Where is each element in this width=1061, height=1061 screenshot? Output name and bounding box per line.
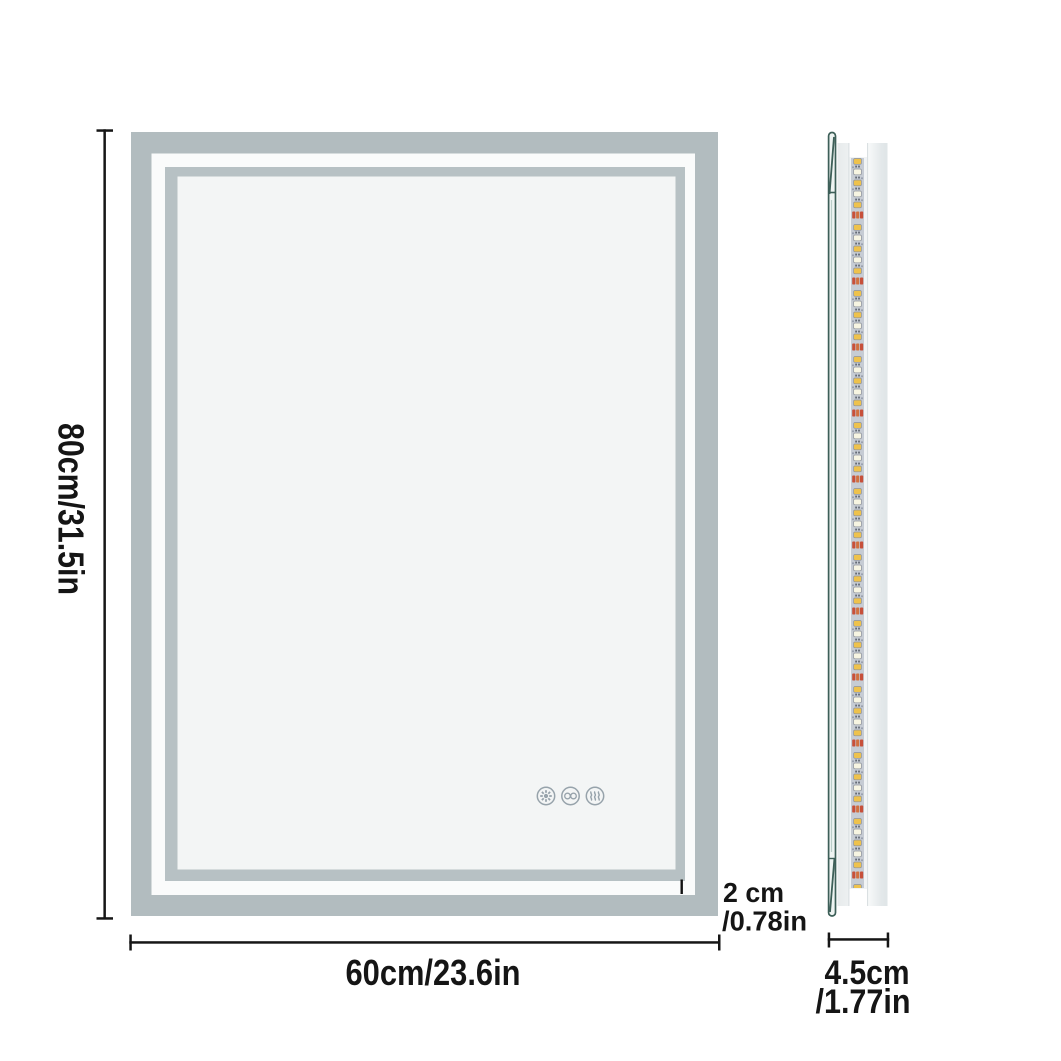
svg-text:/0.78in: /0.78in <box>722 906 807 937</box>
svg-text:80cm/31.5in: 80cm/31.5in <box>50 423 91 595</box>
svg-text:2 cm: 2 cm <box>723 877 784 908</box>
svg-text:/1.77in: /1.77in <box>816 983 911 1021</box>
svg-text:60cm/23.6in: 60cm/23.6in <box>346 952 521 993</box>
